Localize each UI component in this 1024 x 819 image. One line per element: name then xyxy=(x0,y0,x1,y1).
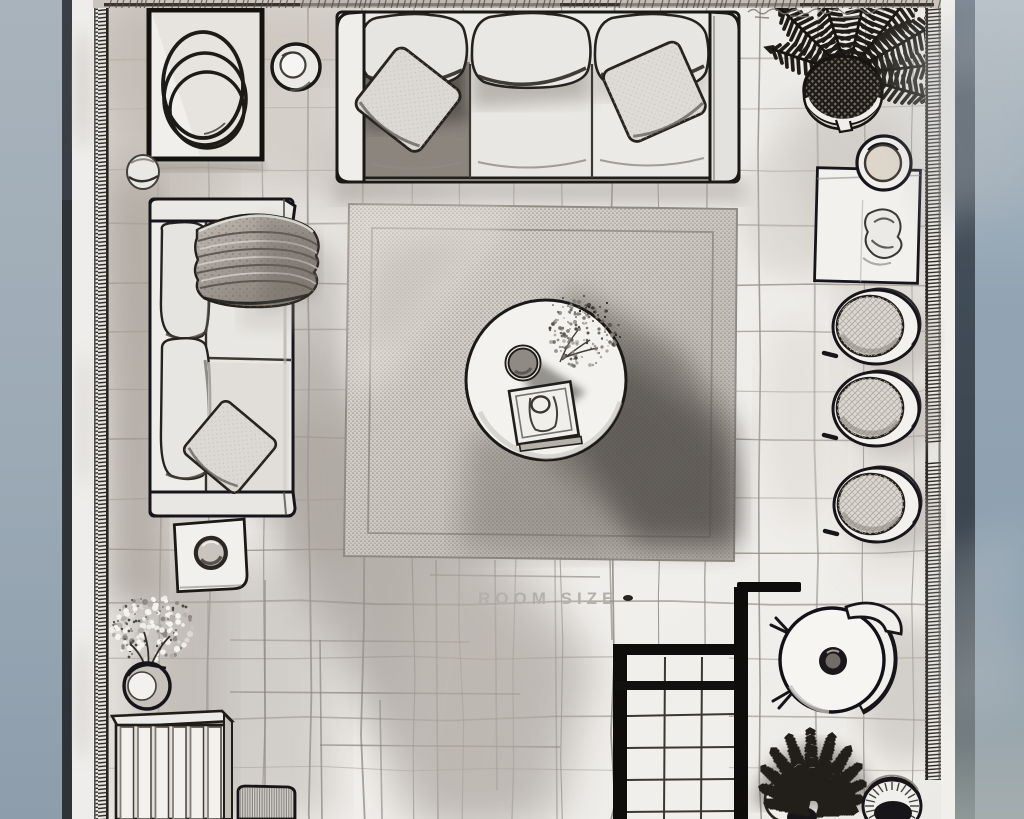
svg-text:ROOM SIZE: ROOM SIZE xyxy=(478,589,618,608)
